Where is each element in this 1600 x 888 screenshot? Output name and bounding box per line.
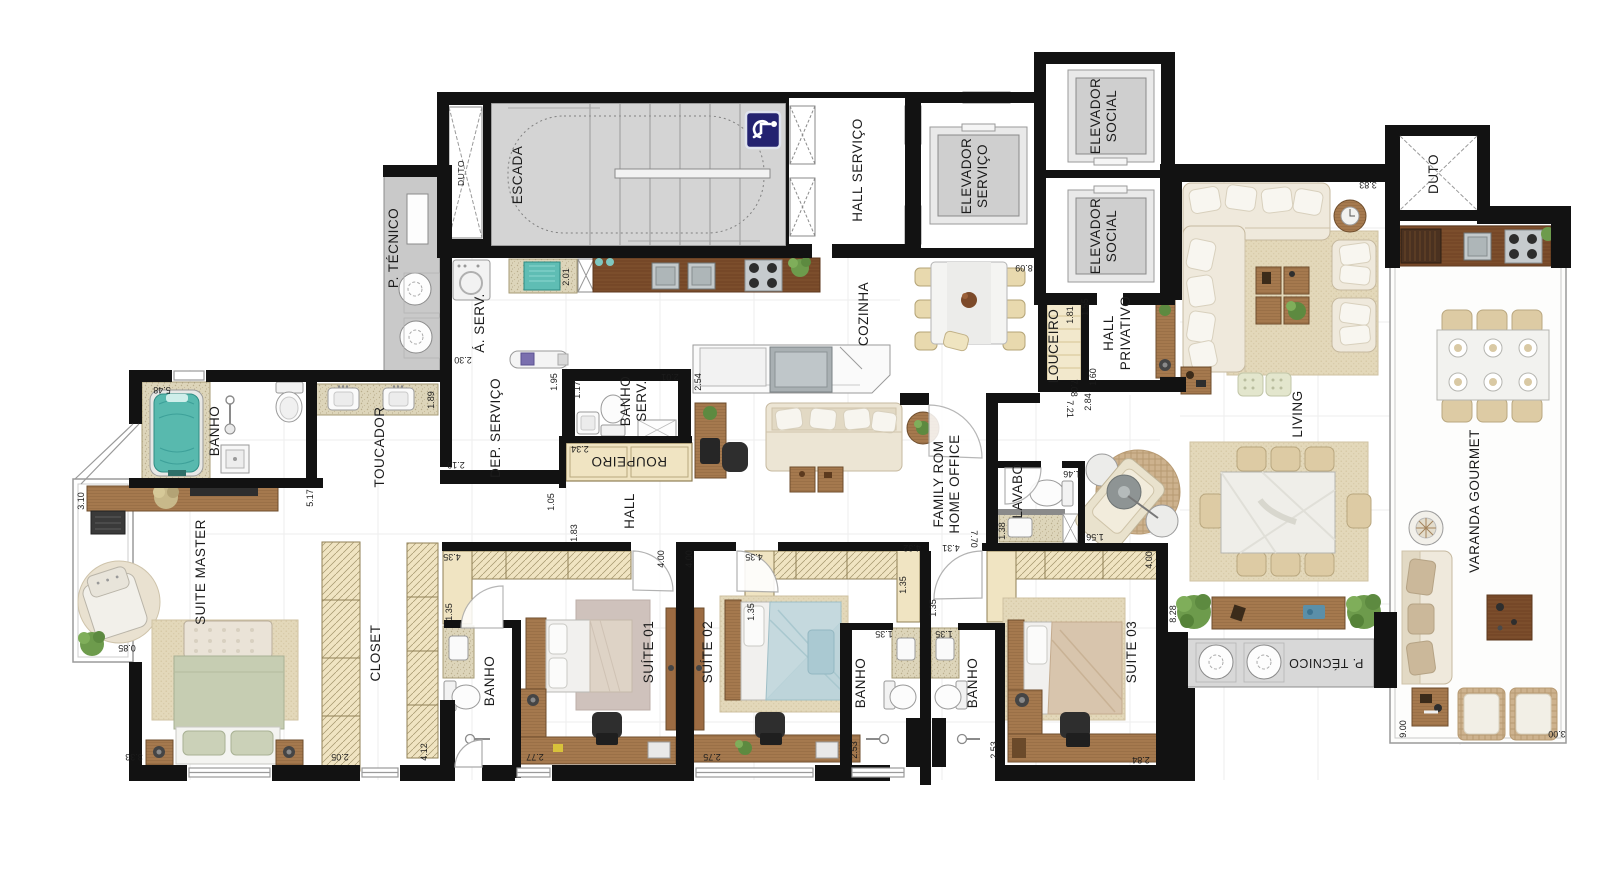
svg-text:HALL: HALL — [622, 493, 637, 529]
svg-text:COZINHA: COZINHA — [856, 282, 871, 346]
svg-text:2.05: 2.05 — [331, 752, 349, 762]
svg-text:3.83: 3.83 — [1359, 180, 1377, 190]
svg-text:4.00: 4.00 — [684, 550, 694, 568]
svg-text:2.34: 2.34 — [571, 444, 589, 454]
svg-text:SERV.: SERV. — [634, 380, 649, 422]
svg-text:1.35: 1.35 — [444, 603, 454, 621]
svg-text:4.32: 4.32 — [903, 543, 921, 553]
svg-text:SUÍTE 02: SUÍTE 02 — [700, 621, 715, 684]
svg-text:2.84: 2.84 — [1083, 393, 1093, 411]
svg-text:LAVABO: LAVABO — [1010, 463, 1025, 518]
svg-text:BANHO: BANHO — [207, 406, 222, 457]
svg-text:3.10: 3.10 — [76, 492, 86, 510]
svg-text:Á. SERV.: Á. SERV. — [472, 293, 487, 353]
svg-text:1.17: 1.17 — [572, 381, 582, 399]
svg-text:4.00: 4.00 — [656, 550, 666, 568]
svg-text:9.00: 9.00 — [1398, 720, 1408, 738]
svg-text:1.35: 1.35 — [875, 629, 893, 639]
svg-text:FAMILY ROM: FAMILY ROM — [931, 440, 946, 527]
svg-text:2.77: 2.77 — [526, 752, 544, 762]
svg-text:LOUCEIRO: LOUCEIRO — [1046, 309, 1061, 384]
svg-text:1.35: 1.35 — [935, 629, 953, 639]
svg-text:ROUPEIRO: ROUPEIRO — [591, 454, 667, 469]
svg-text:2.75: 2.75 — [703, 752, 721, 762]
svg-text:4.35: 4.35 — [443, 552, 461, 562]
svg-text:1.83: 1.83 — [569, 524, 579, 542]
svg-text:1.35: 1.35 — [898, 576, 908, 594]
svg-text:SERVIÇO: SERVIÇO — [975, 144, 990, 208]
svg-text:7.70: 7.70 — [969, 530, 979, 548]
svg-text:SUITE MASTER: SUITE MASTER — [193, 519, 208, 625]
svg-text:P. TÉCNICO: P. TÉCNICO — [1289, 656, 1364, 671]
svg-text:ELEVADOR: ELEVADOR — [1088, 78, 1103, 155]
svg-text:DUTO: DUTO — [1426, 154, 1441, 194]
svg-text:1.05: 1.05 — [546, 493, 556, 511]
svg-text:1.81: 1.81 — [1065, 306, 1075, 324]
svg-text:CLOSET: CLOSET — [368, 624, 383, 681]
svg-text:SOCIAL: SOCIAL — [1104, 210, 1119, 263]
svg-text:5.48: 5.48 — [153, 385, 171, 395]
svg-text:5.17: 5.17 — [305, 489, 315, 507]
svg-text:HALL SERVIÇO: HALL SERVIÇO — [850, 118, 865, 222]
svg-text:LIVING: LIVING — [1290, 390, 1305, 437]
svg-text:HOME OFFICE: HOME OFFICE — [947, 434, 962, 533]
svg-text:SUÍTE 01: SUÍTE 01 — [641, 621, 656, 684]
svg-text:1.46: 1.46 — [1063, 469, 1081, 479]
svg-text:4.31: 4.31 — [942, 543, 960, 553]
svg-text:DUTO: DUTO — [456, 160, 466, 186]
svg-text:BANHO: BANHO — [482, 656, 497, 707]
svg-text:ELEVADOR: ELEVADOR — [959, 138, 974, 215]
svg-text:2.53: 2.53 — [989, 741, 999, 759]
svg-text:VARANDA GOURMET: VARANDA GOURMET — [1467, 429, 1482, 573]
svg-text:BANHO: BANHO — [853, 658, 868, 709]
svg-text:1.89: 1.89 — [426, 391, 436, 409]
svg-text:4.12: 4.12 — [419, 743, 429, 761]
svg-text:1.95: 1.95 — [549, 373, 559, 391]
svg-text:ESCADA: ESCADA — [510, 146, 525, 205]
svg-text:HALL: HALL — [1101, 315, 1116, 351]
svg-text:1.38: 1.38 — [997, 522, 1007, 540]
svg-text:TOUCADOR: TOUCADOR — [372, 406, 387, 487]
svg-text:2.01: 2.01 — [661, 372, 679, 382]
svg-text:3.00: 3.00 — [1548, 729, 1566, 739]
svg-text:8.28: 8.28 — [1168, 605, 1178, 623]
svg-text:1.35: 1.35 — [746, 603, 756, 621]
svg-text:2.53: 2.53 — [849, 741, 859, 759]
svg-text:2.84: 2.84 — [1132, 755, 1150, 765]
svg-text:BANHO: BANHO — [618, 376, 633, 427]
svg-text:7.21: 7.21 — [1065, 400, 1075, 418]
svg-text:ELEVADOR: ELEVADOR — [1088, 198, 1103, 275]
svg-text:2.54: 2.54 — [693, 373, 703, 391]
svg-text:2.10: 2.10 — [447, 460, 465, 470]
svg-text:4.00: 4.00 — [1144, 551, 1154, 569]
svg-text:8.09: 8.09 — [1015, 263, 1033, 273]
svg-text:P. TÉCNICO: P. TÉCNICO — [386, 208, 401, 288]
svg-text:1.60: 1.60 — [1088, 368, 1098, 386]
svg-text:DEP. SERVIÇO: DEP. SERVIÇO — [488, 378, 503, 478]
svg-text:BANHO: BANHO — [965, 658, 980, 709]
svg-text:PRIVATIVO: PRIVATIVO — [1118, 296, 1133, 371]
svg-text:3.33: 3.33 — [125, 752, 143, 762]
svg-text:1.55: 1.55 — [1080, 298, 1090, 316]
svg-text:4.35: 4.35 — [745, 552, 763, 562]
svg-text:2.30: 2.30 — [454, 355, 472, 365]
svg-text:1.35: 1.35 — [928, 599, 938, 617]
svg-text:SUITE 03: SUITE 03 — [1124, 621, 1139, 684]
svg-text:1.56: 1.56 — [1086, 532, 1104, 542]
svg-text:SOCIAL: SOCIAL — [1104, 90, 1119, 143]
svg-text:2.01: 2.01 — [561, 268, 571, 286]
svg-text:7.08: 7.08 — [1069, 379, 1079, 397]
svg-text:0.85: 0.85 — [118, 643, 136, 653]
